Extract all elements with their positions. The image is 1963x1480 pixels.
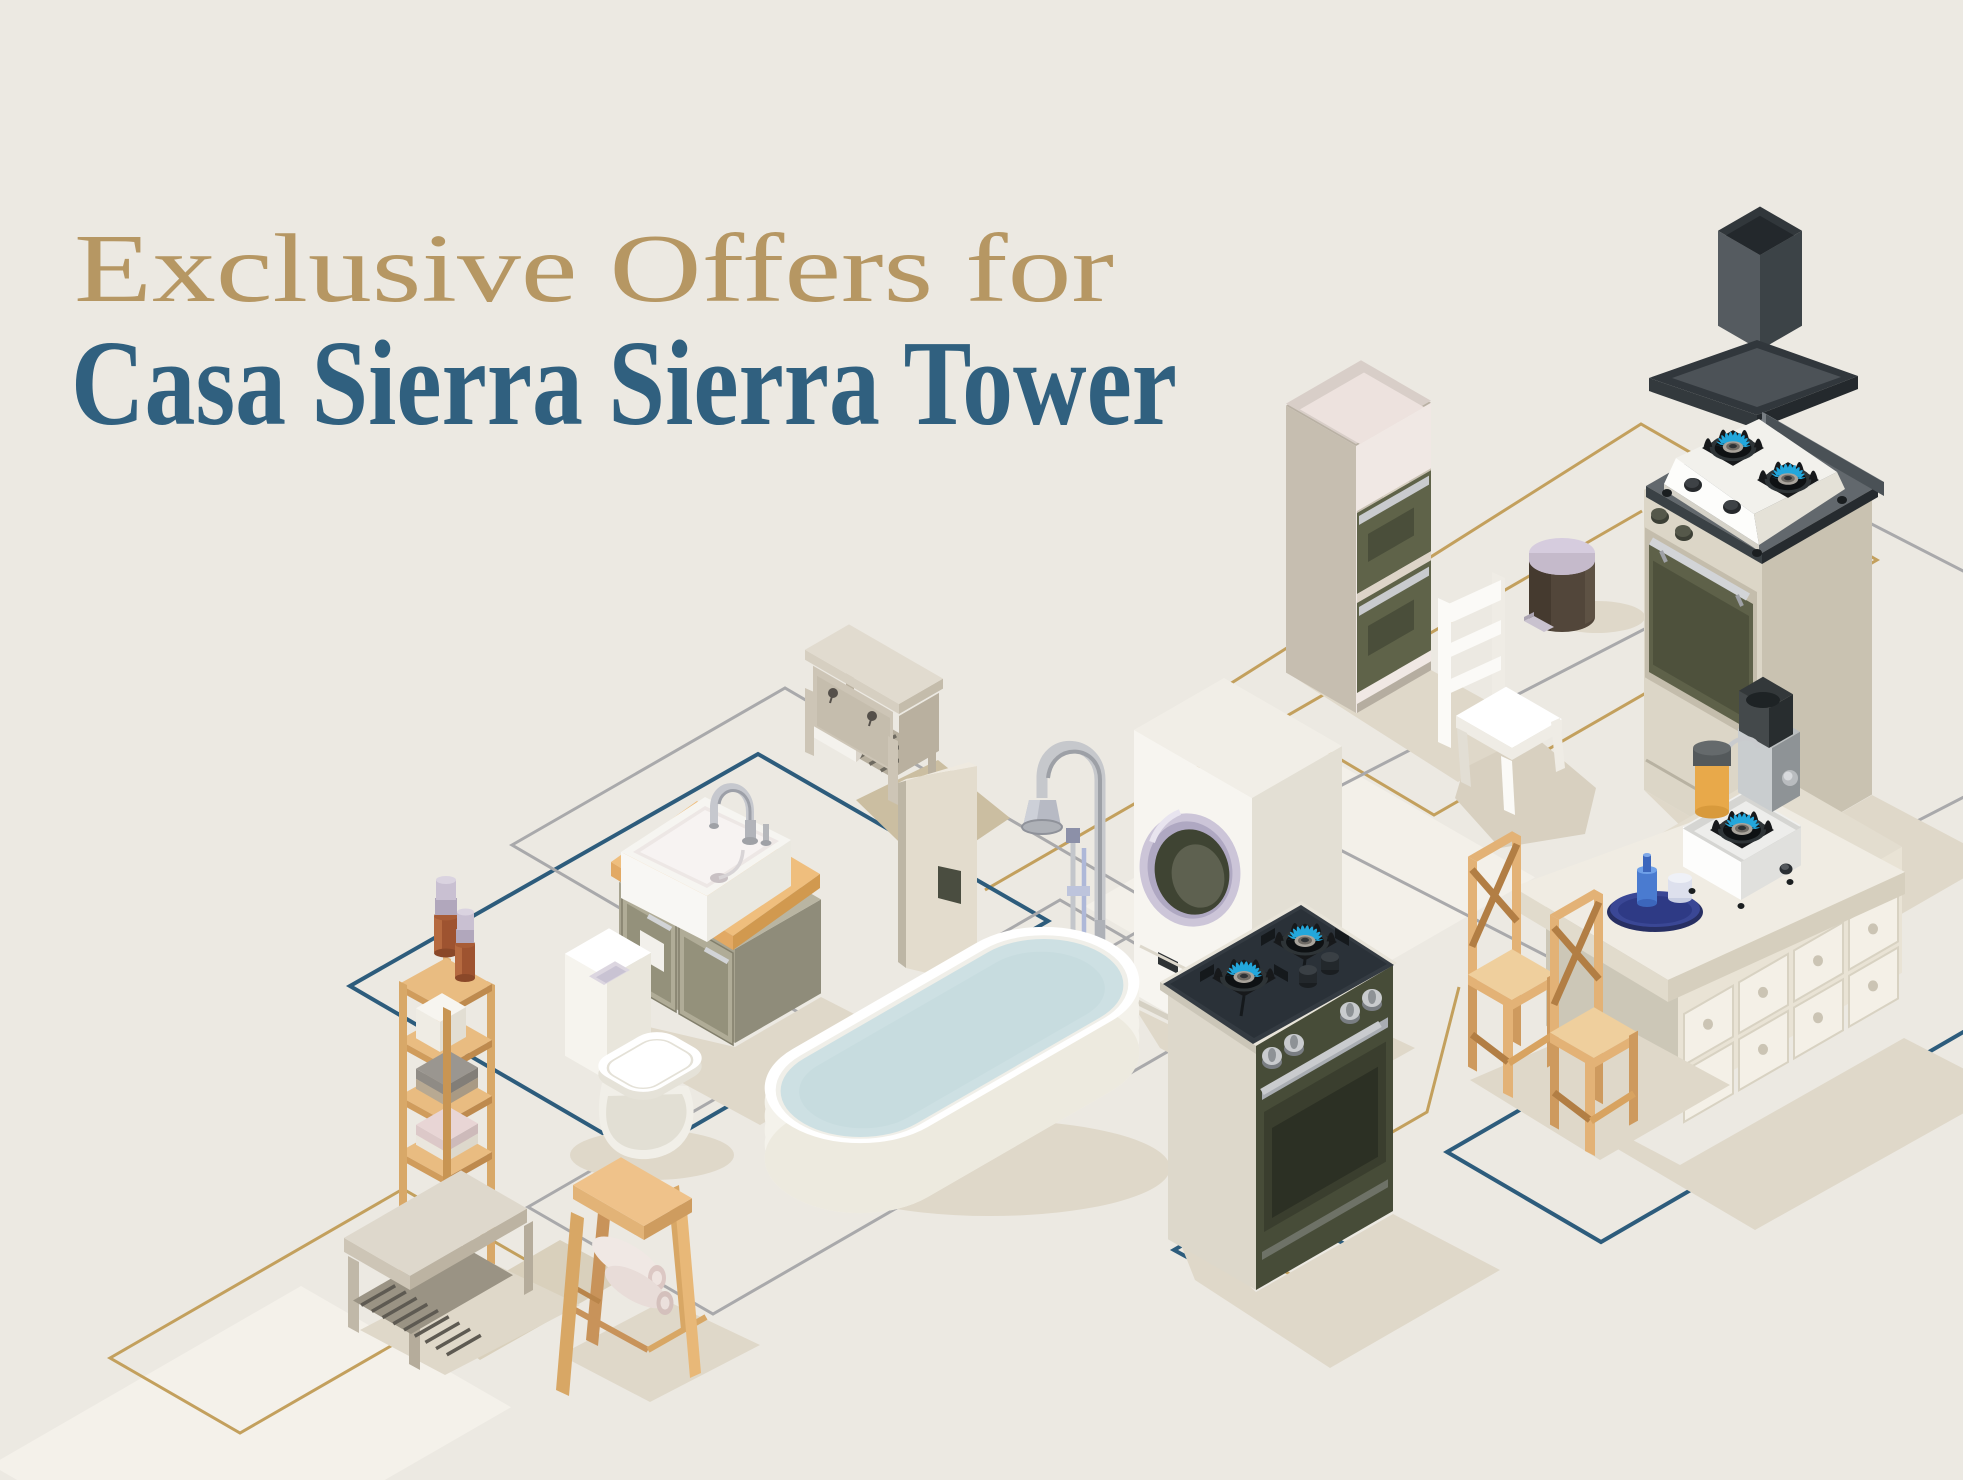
svg-text:Casa Sierra Sierra Tower: Casa Sierra Sierra Tower bbox=[71, 316, 1177, 451]
svg-text:Exclusive Offers for: Exclusive Offers for bbox=[74, 215, 1114, 323]
